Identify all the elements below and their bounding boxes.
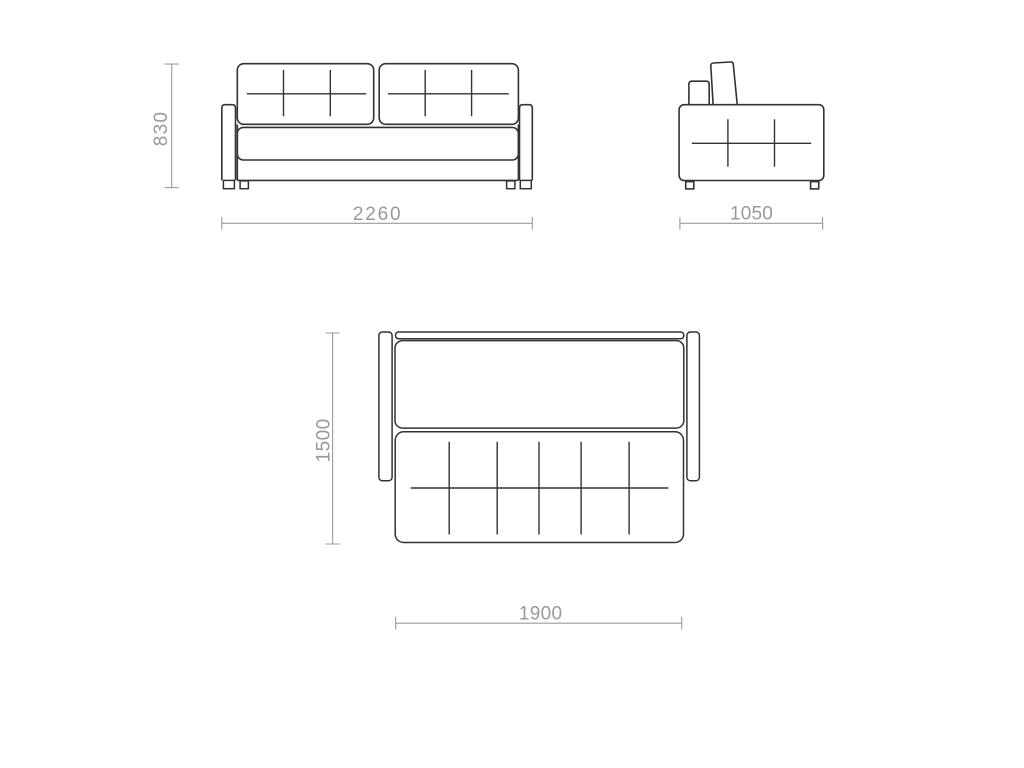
svg-text:1900: 1900 [519, 604, 562, 625]
svg-text:1500: 1500 [313, 418, 334, 462]
svg-text:2260: 2260 [353, 204, 402, 225]
svg-text:830: 830 [151, 111, 172, 147]
svg-text:1050: 1050 [730, 204, 773, 225]
